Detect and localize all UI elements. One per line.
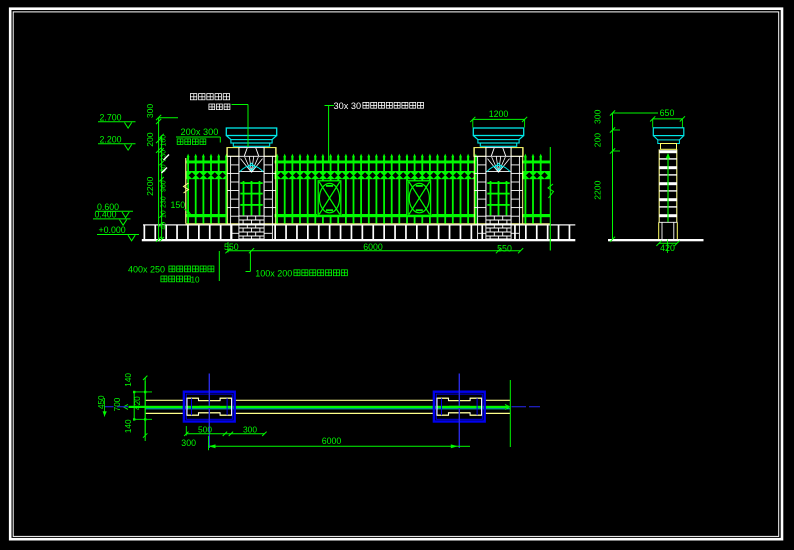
- svg-text:960: 960: [161, 180, 168, 192]
- svg-text:1200: 1200: [489, 109, 509, 119]
- svg-text:100x 200: 100x 200: [255, 269, 292, 279]
- svg-text:500: 500: [198, 425, 212, 435]
- svg-text:+0.000: +0.000: [99, 225, 126, 235]
- svg-text:420: 420: [133, 396, 142, 410]
- svg-text:140: 140: [124, 373, 133, 387]
- svg-text:30x 30: 30x 30: [334, 101, 362, 111]
- svg-text:150: 150: [171, 200, 186, 210]
- svg-text:140: 140: [124, 419, 133, 433]
- svg-text:300: 300: [243, 425, 257, 435]
- svg-text:160: 160: [161, 135, 168, 147]
- svg-text:2.200: 2.200: [100, 134, 122, 144]
- svg-text:300: 300: [145, 104, 155, 119]
- svg-text:0.400: 0.400: [95, 210, 117, 220]
- svg-text:230: 230: [161, 196, 168, 208]
- svg-text:650: 650: [660, 108, 675, 118]
- svg-text:300: 300: [592, 109, 602, 124]
- svg-text:6000: 6000: [363, 242, 383, 252]
- svg-text:10: 10: [161, 210, 168, 218]
- svg-text:400x 250: 400x 250: [128, 264, 165, 274]
- svg-text:2.700: 2.700: [100, 112, 122, 122]
- svg-text:200: 200: [592, 133, 602, 148]
- svg-text:550: 550: [497, 243, 512, 253]
- svg-text:200x 300: 200x 300: [181, 127, 219, 137]
- svg-text:200: 200: [145, 132, 155, 147]
- svg-text:550: 550: [224, 242, 239, 252]
- svg-text:700: 700: [113, 397, 122, 411]
- svg-text:10: 10: [191, 275, 201, 284]
- svg-text:2200: 2200: [145, 177, 155, 196]
- svg-text:2200: 2200: [592, 180, 602, 199]
- svg-text:6000: 6000: [322, 436, 342, 446]
- svg-text:300: 300: [181, 438, 196, 448]
- svg-text:40: 40: [161, 222, 168, 230]
